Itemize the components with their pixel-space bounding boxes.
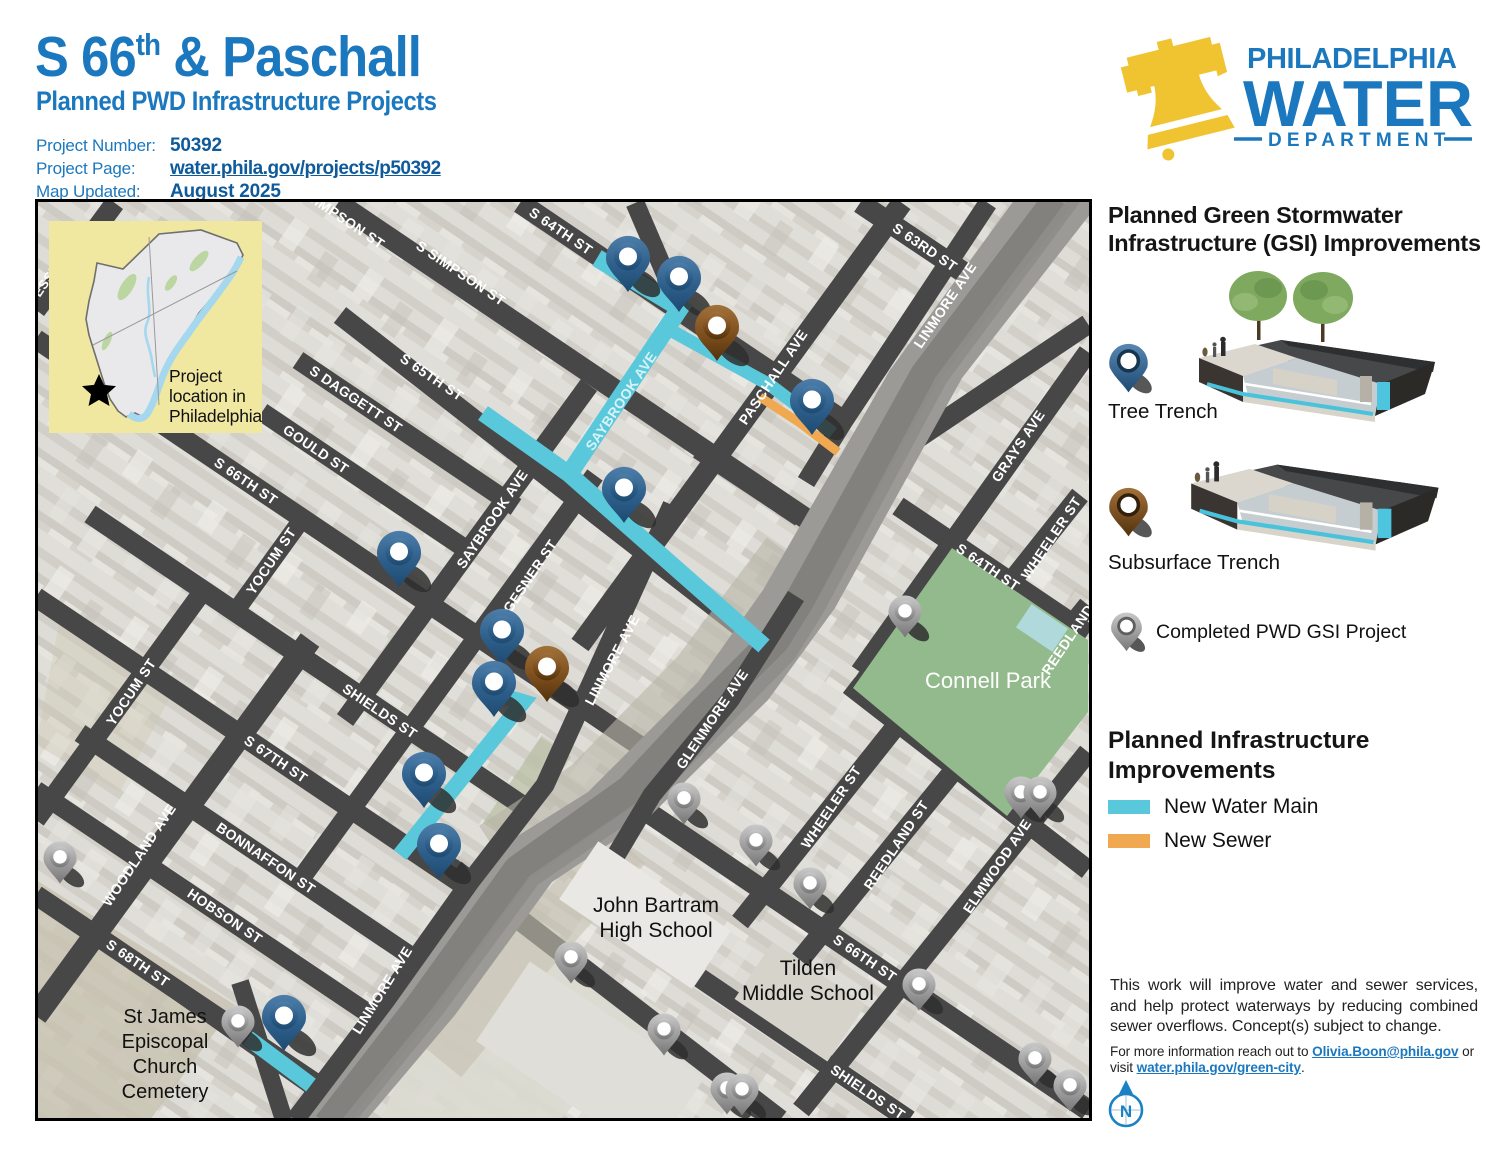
svg-text:High School: High School — [599, 919, 712, 942]
svg-text:John Bartram: John Bartram — [593, 894, 719, 917]
svg-text:Connell Park: Connell Park — [925, 668, 1052, 693]
svg-text:location in: location in — [169, 386, 246, 406]
svg-text:Tilden: Tilden — [780, 957, 836, 980]
svg-text:Project: Project — [169, 366, 222, 386]
svg-text:Middle School: Middle School — [742, 982, 874, 1005]
svg-text:Cemetery: Cemetery — [122, 1081, 209, 1103]
svg-text:N: N — [1120, 1102, 1132, 1121]
svg-text:DEPARTMENT: DEPARTMENT — [1268, 130, 1451, 151]
svg-text:Church: Church — [133, 1056, 197, 1078]
svg-text:Episcopal: Episcopal — [122, 1031, 209, 1053]
svg-text:St James: St James — [123, 1006, 206, 1028]
svg-text:Philadelphia: Philadelphia — [169, 406, 262, 426]
